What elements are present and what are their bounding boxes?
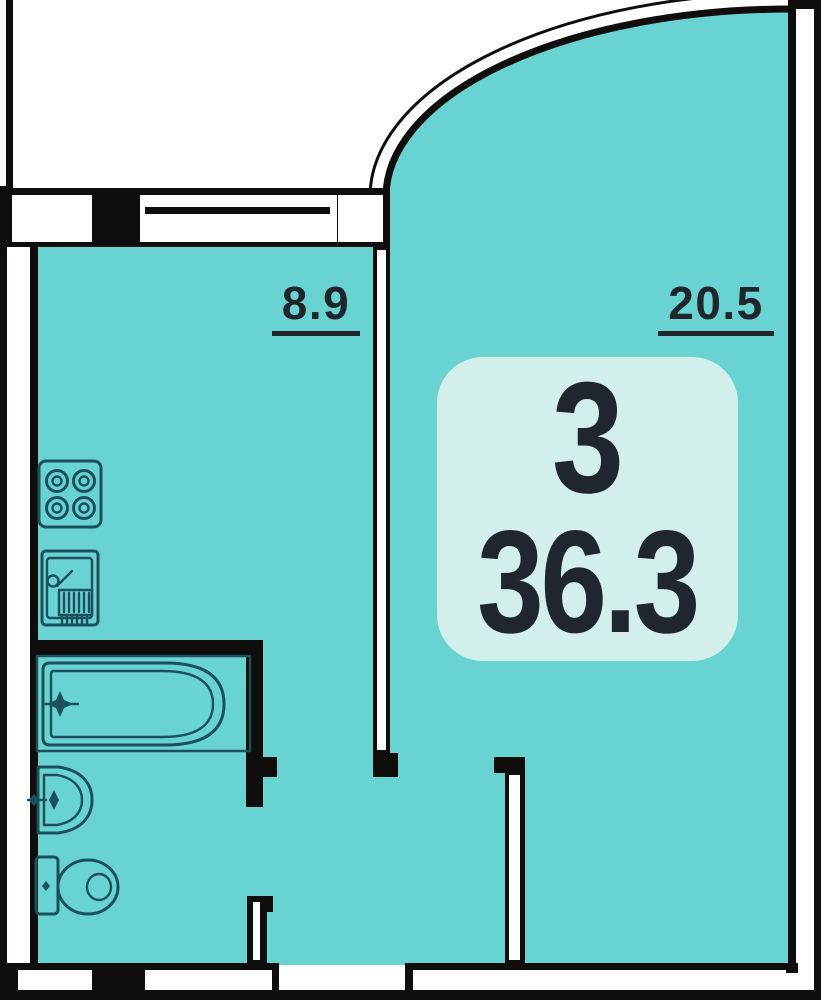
window-band-top <box>7 188 390 247</box>
badge-total-area: 36.3 <box>478 522 698 642</box>
right-wall <box>788 0 821 1000</box>
left-wall <box>0 0 38 1000</box>
kitchen-area-value: 8.9 <box>282 277 350 329</box>
floor-plan: 8.9 20.5 3 36.3 <box>0 0 821 1000</box>
living-room-area-label: 20.5 <box>658 279 774 336</box>
living-room-area-value: 20.5 <box>668 277 764 329</box>
bottom-wall-band <box>0 963 821 1000</box>
area-badge: 3 36.3 <box>437 357 738 661</box>
window-kitchen <box>140 195 337 242</box>
badge-rooms-number: 3 <box>551 373 623 503</box>
window-top-left <box>12 195 92 242</box>
kitchen-area-label: 8.9 <box>272 279 360 336</box>
wall-pier <box>338 195 383 242</box>
